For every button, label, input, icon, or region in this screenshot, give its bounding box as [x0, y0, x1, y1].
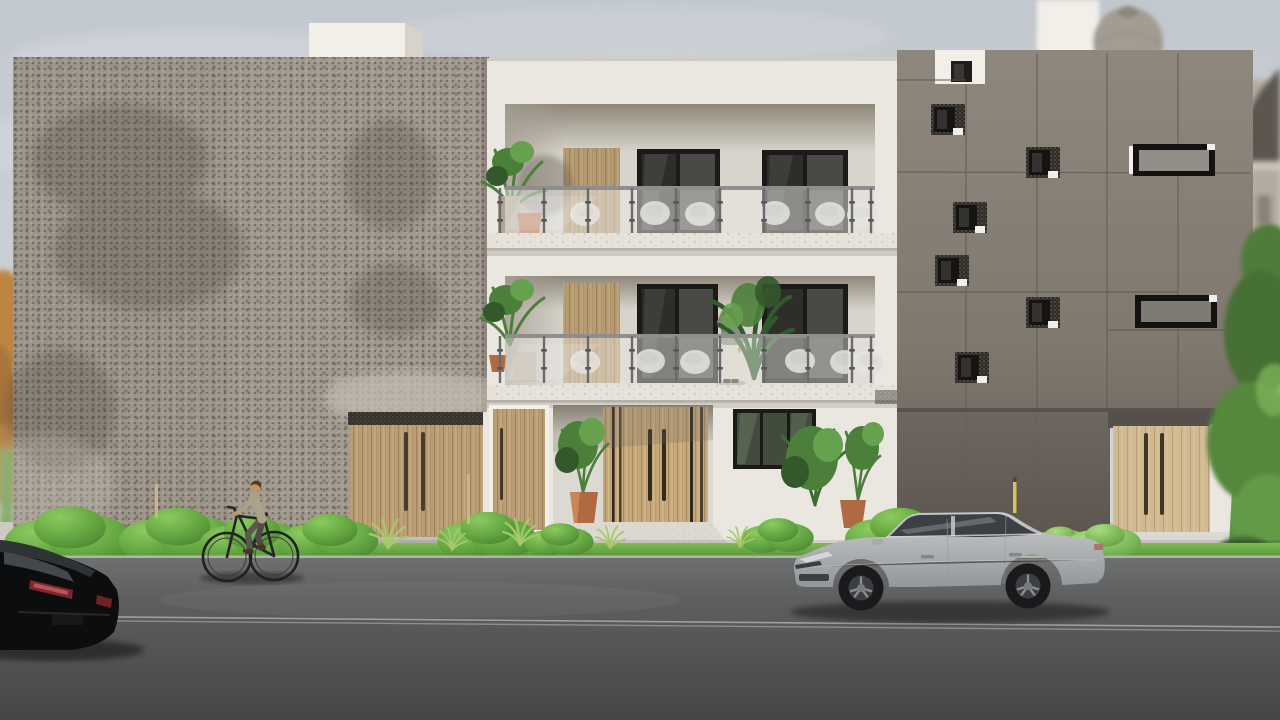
rooftop-parapet — [309, 23, 423, 59]
garage-right-handle — [1160, 433, 1164, 515]
front-wheel — [839, 566, 884, 611]
side-mirror — [872, 539, 883, 545]
balcony-upper — [482, 104, 897, 256]
garage-left-handle — [404, 432, 408, 511]
render-canvas — [0, 0, 1280, 720]
balcony-middle — [481, 276, 897, 408]
garage-right-handle — [1144, 433, 1148, 515]
right-building — [897, 50, 1258, 546]
side-door-handle — [500, 428, 503, 500]
balcony-middle-railing — [497, 334, 875, 385]
center-building — [481, 58, 897, 560]
taillight — [1094, 544, 1103, 550]
architectural-render — [0, 0, 1280, 720]
balcony-upper-railing — [497, 186, 875, 235]
horizontal-window-upper — [1129, 144, 1215, 176]
horizontal-window-lower — [1135, 295, 1217, 328]
garage-left-handle — [421, 432, 425, 511]
left-building — [0, 57, 495, 560]
rear-wheel — [1006, 564, 1051, 609]
